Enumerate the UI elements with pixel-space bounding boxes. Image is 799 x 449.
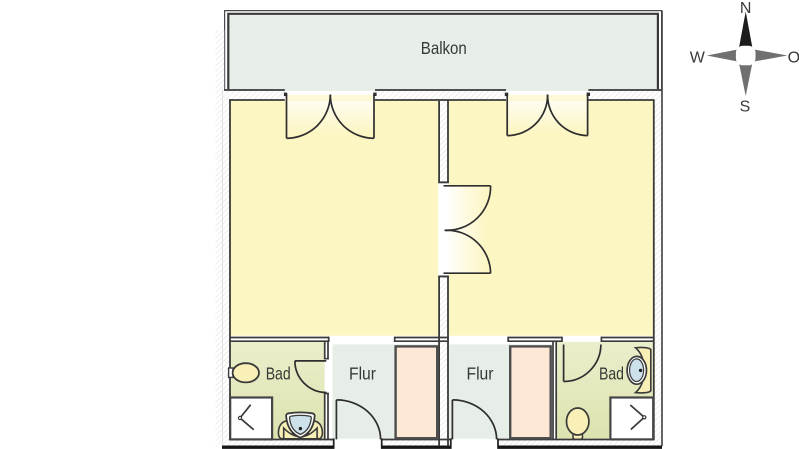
svg-text:Flur: Flur — [467, 364, 494, 384]
svg-text:Flur: Flur — [349, 364, 376, 384]
svg-text:S: S — [740, 99, 751, 116]
svg-text:O: O — [788, 50, 799, 67]
svg-text:Bad: Bad — [266, 364, 291, 384]
svg-text:W: W — [690, 50, 706, 67]
svg-text:Balkon: Balkon — [421, 38, 467, 58]
svg-text:Bad: Bad — [599, 364, 624, 384]
svg-text:N: N — [740, 0, 752, 17]
